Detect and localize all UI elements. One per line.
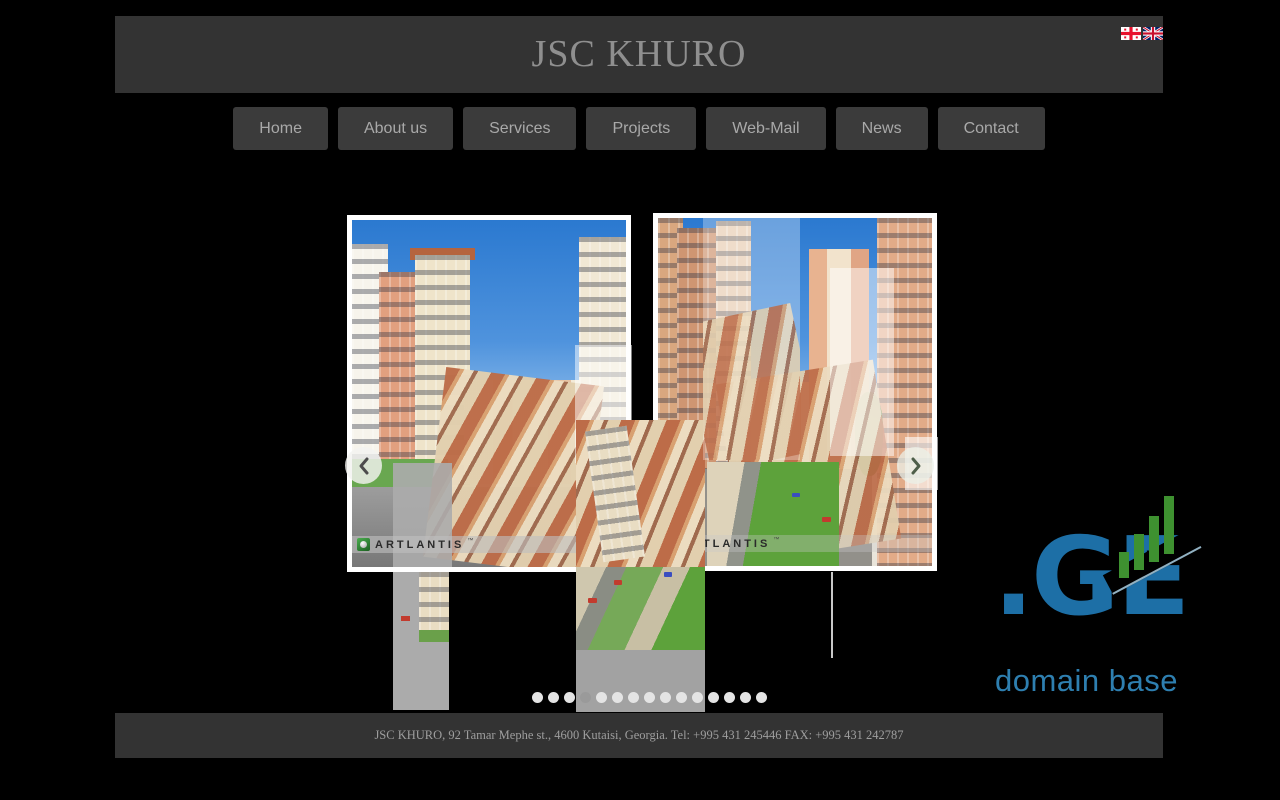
carousel-dot-5[interactable]: [596, 692, 607, 703]
footer: JSC KHURO, 92 Tamar Mephe st., 4600 Kuta…: [115, 713, 1163, 758]
uk-flag-icon[interactable]: [1143, 27, 1163, 40]
carousel-dot-13[interactable]: [724, 692, 735, 703]
main-nav: Home About us Services Projects Web-Mail…: [115, 107, 1163, 150]
carousel-dot-2[interactable]: [548, 692, 559, 703]
carousel-prev-button[interactable]: [345, 447, 382, 484]
ge-logo-bar-icon: [1149, 516, 1159, 562]
photo-fragment: [401, 616, 410, 621]
photo-fragment: [585, 426, 645, 563]
carousel-dot-12[interactable]: [708, 692, 719, 703]
ge-logo-bar-icon: [1164, 496, 1174, 554]
transition-tile: [703, 218, 800, 460]
carousel-dot-11[interactable]: [692, 692, 703, 703]
photo-fragment: [664, 572, 672, 577]
carousel-dot-10[interactable]: [676, 692, 687, 703]
transition-tile-column: [393, 572, 449, 710]
photo-fragment: [576, 567, 705, 650]
ge-logo-bar-icon: [1119, 552, 1129, 578]
carousel-dot-1[interactable]: [532, 692, 543, 703]
photo-fragment: [792, 493, 800, 497]
ge-domain-logo[interactable]: .GE domain base: [993, 500, 1193, 705]
transition-tile-column: [576, 420, 705, 712]
carousel-dot-6[interactable]: [612, 692, 623, 703]
ge-logo-bar-icon: [1134, 534, 1144, 570]
trademark-symbol: ™: [467, 538, 473, 544]
photo-fragment: [614, 580, 622, 585]
carousel-dot-9[interactable]: [660, 692, 671, 703]
nav-web-mail[interactable]: Web-Mail: [706, 107, 825, 150]
carousel-dot-3[interactable]: [564, 692, 575, 703]
chevron-left-icon: [357, 456, 371, 476]
page: JSC KHURO: [0, 0, 1280, 800]
watermark-text: ARTLANTIS: [375, 539, 464, 551]
carousel-dot-8[interactable]: [644, 692, 655, 703]
photo-fragment: [419, 572, 449, 638]
carousel-dot-4[interactable]: [580, 692, 591, 703]
site-title: JSC KHURO: [115, 16, 1163, 93]
nav-contact[interactable]: Contact: [938, 107, 1045, 150]
carousel-dot-7[interactable]: [628, 692, 639, 703]
carousel-dots: [532, 692, 767, 703]
transition-tile: [830, 268, 894, 456]
nav-about-us[interactable]: About us: [338, 107, 453, 150]
georgia-flag-icon[interactable]: [1121, 27, 1141, 40]
nav-home[interactable]: Home: [233, 107, 328, 150]
photo-fragment: [588, 598, 597, 603]
photo-fragment: [419, 630, 449, 642]
carousel-dot-14[interactable]: [740, 692, 751, 703]
transition-tile: [831, 572, 833, 658]
photo-fragment: [703, 303, 800, 460]
photo-fragment: [576, 420, 705, 567]
carousel-next-button[interactable]: [897, 447, 934, 484]
nav-services[interactable]: Services: [463, 107, 576, 150]
nav-news[interactable]: News: [836, 107, 928, 150]
footer-text: JSC KHURO, 92 Tamar Mephe st., 4600 Kuta…: [374, 728, 903, 743]
artlantis-logo-icon: [357, 538, 370, 551]
header: JSC KHURO: [115, 16, 1163, 93]
ge-tagline: domain base: [995, 663, 1178, 699]
chevron-right-icon: [909, 456, 923, 476]
photo-fragment: [822, 517, 831, 522]
nav-projects[interactable]: Projects: [586, 107, 696, 150]
carousel-dot-15[interactable]: [756, 692, 767, 703]
language-switcher: [1121, 27, 1163, 40]
trademark-symbol: ™: [773, 537, 779, 543]
